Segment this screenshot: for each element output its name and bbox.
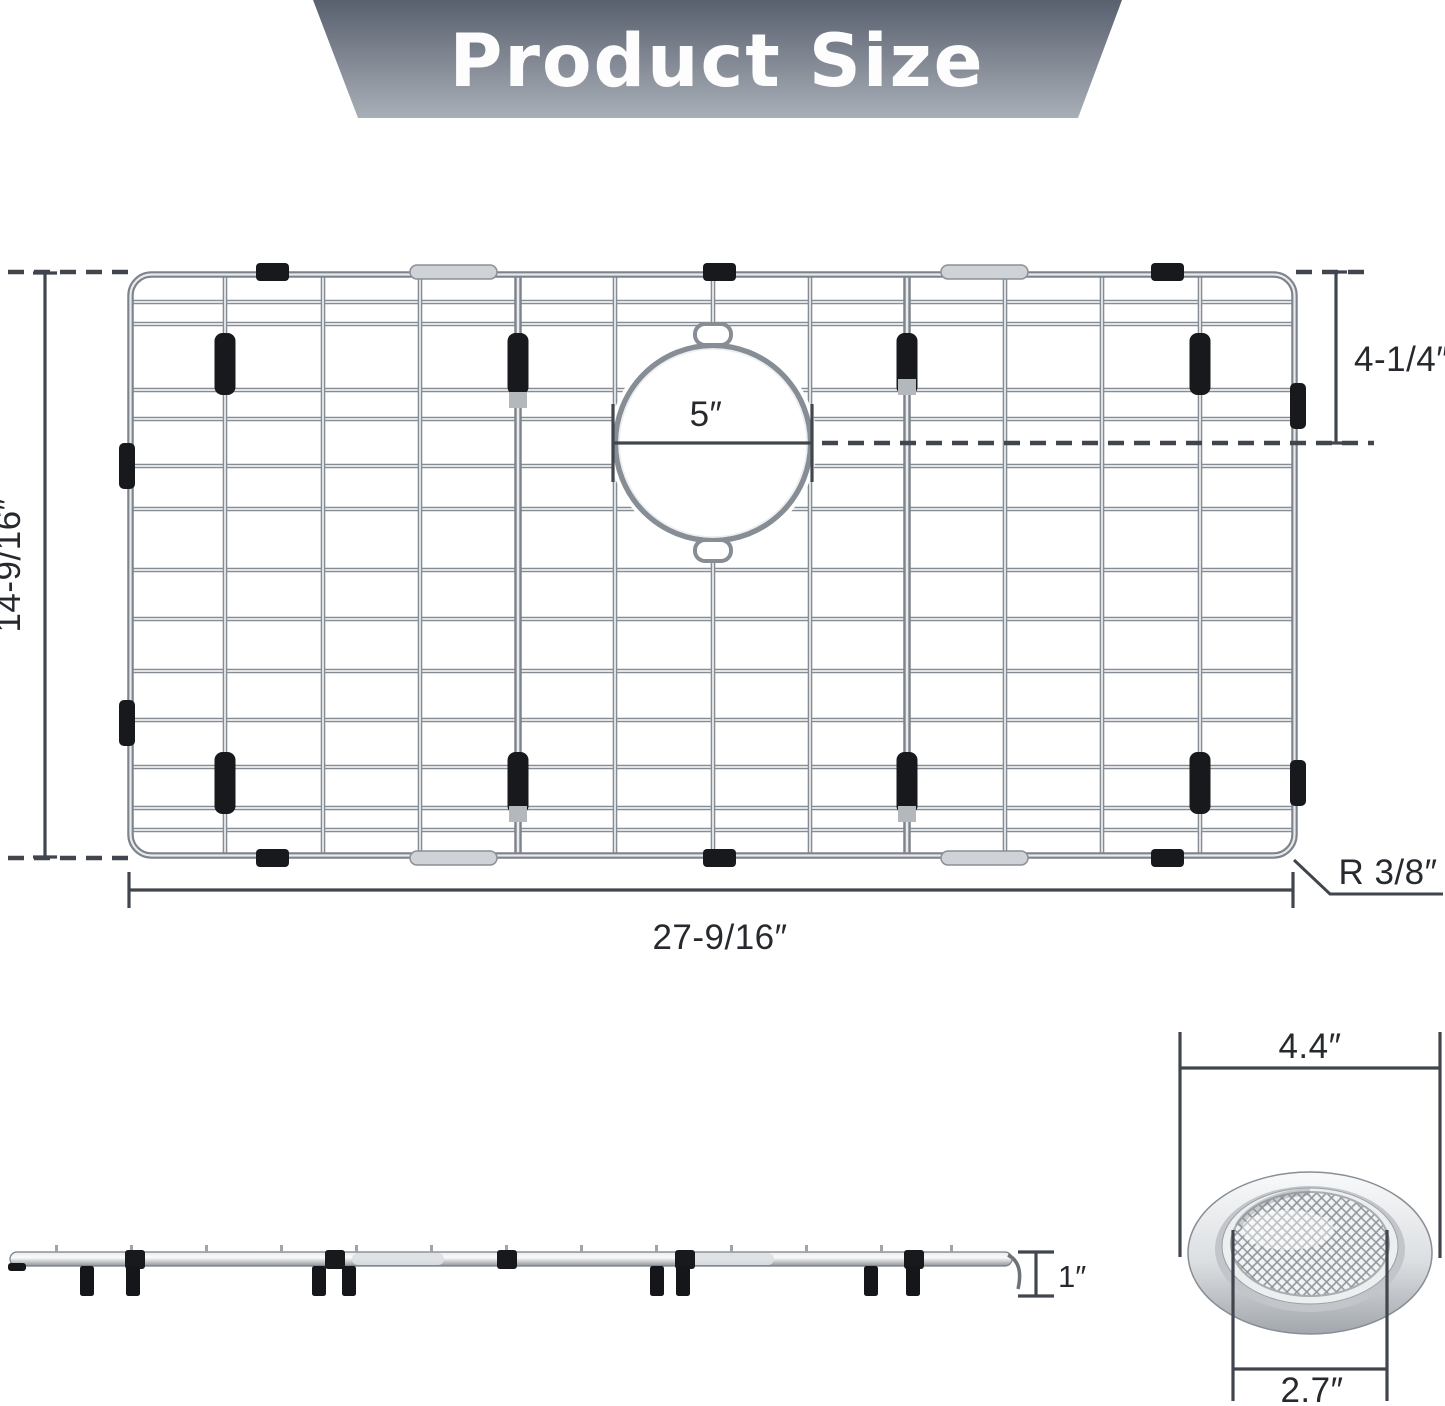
bottom-edge-clip: [1151, 849, 1184, 867]
width-dimension-label: 27-9/16″: [652, 918, 787, 957]
side-foot: [676, 1266, 690, 1296]
grid-foot: [508, 333, 529, 395]
dimension-corner-radius: R 3/8″: [1294, 853, 1443, 894]
dimension-thickness: 1″: [1018, 1252, 1086, 1296]
title-banner: Product Size: [313, 0, 1122, 118]
grid-foot: [508, 752, 529, 814]
top-edge-sleeve: [941, 265, 1028, 279]
right-edge-clip: [1290, 383, 1306, 429]
side-foot: [650, 1266, 664, 1296]
grid-foot: [897, 752, 918, 814]
strainer-inner-label: 2.7″: [1280, 1371, 1343, 1406]
foot-connector: [898, 379, 916, 395]
height-dimension-label: 14-9/16″: [0, 497, 28, 632]
foot-connector: [509, 806, 527, 822]
grid-foot: [1190, 752, 1211, 814]
dimension-line: [1018, 1252, 1054, 1296]
side-foot: [80, 1266, 94, 1296]
hole-offset-label: 4-1/4″: [1354, 340, 1445, 379]
dimension-line: [1325, 272, 1347, 443]
side-feet: [8, 1263, 920, 1296]
drain-hole-tab-top: [695, 324, 731, 345]
top-edge-clip: [703, 263, 736, 281]
corner-radius-label: R 3/8″: [1338, 853, 1437, 892]
dimension-width: 27-9/16″: [129, 872, 1293, 957]
foot-connector: [509, 392, 527, 408]
bottom-edge-clip: [703, 849, 736, 867]
strainer-highlight: [1242, 1210, 1334, 1250]
grid-foot: [215, 333, 236, 395]
top-edge-sleeve: [410, 265, 497, 279]
foot-connector: [898, 806, 916, 822]
strainer-outer-label: 4.4″: [1278, 1027, 1341, 1066]
side-foot: [906, 1266, 920, 1296]
banner-title: Product Size: [450, 19, 985, 104]
side-foot: [126, 1266, 140, 1296]
dimension-line: [129, 872, 1293, 908]
side-foot-stub: [8, 1263, 26, 1271]
grid-foot: [1190, 333, 1211, 395]
top-edge-clip: [1151, 263, 1184, 281]
left-edge-clip: [119, 700, 135, 746]
side-foot: [342, 1266, 356, 1296]
dimension-height: 14-9/16″: [0, 273, 57, 857]
product-size-diagram: Product Size: [0, 0, 1445, 1406]
thickness-label: 1″: [1058, 1259, 1086, 1294]
bottom-edge-clip: [256, 849, 289, 867]
right-edge-clip: [1290, 760, 1306, 806]
strainer-view: 4.4″ 2.7″: [1180, 1027, 1440, 1406]
bottom-edge-sleeve: [941, 851, 1028, 865]
dimension-line: [33, 273, 57, 857]
side-foot: [864, 1266, 878, 1296]
grid-foot: [215, 752, 236, 814]
bottom-edge-sleeve: [410, 851, 497, 865]
hole-diameter-label: 5″: [690, 395, 723, 434]
product-size-figure: Product Size: [0, 0, 1445, 1406]
dimension-hole-offset: 4-1/4″: [1325, 272, 1445, 443]
side-foot: [312, 1266, 326, 1296]
sink-grid-top-view: [119, 263, 1306, 867]
top-edge-clip: [256, 263, 289, 281]
sink-grid-side-view: 1″: [8, 1245, 1086, 1296]
drain-hole-tab-bottom: [695, 540, 731, 561]
left-edge-clip: [119, 443, 135, 489]
